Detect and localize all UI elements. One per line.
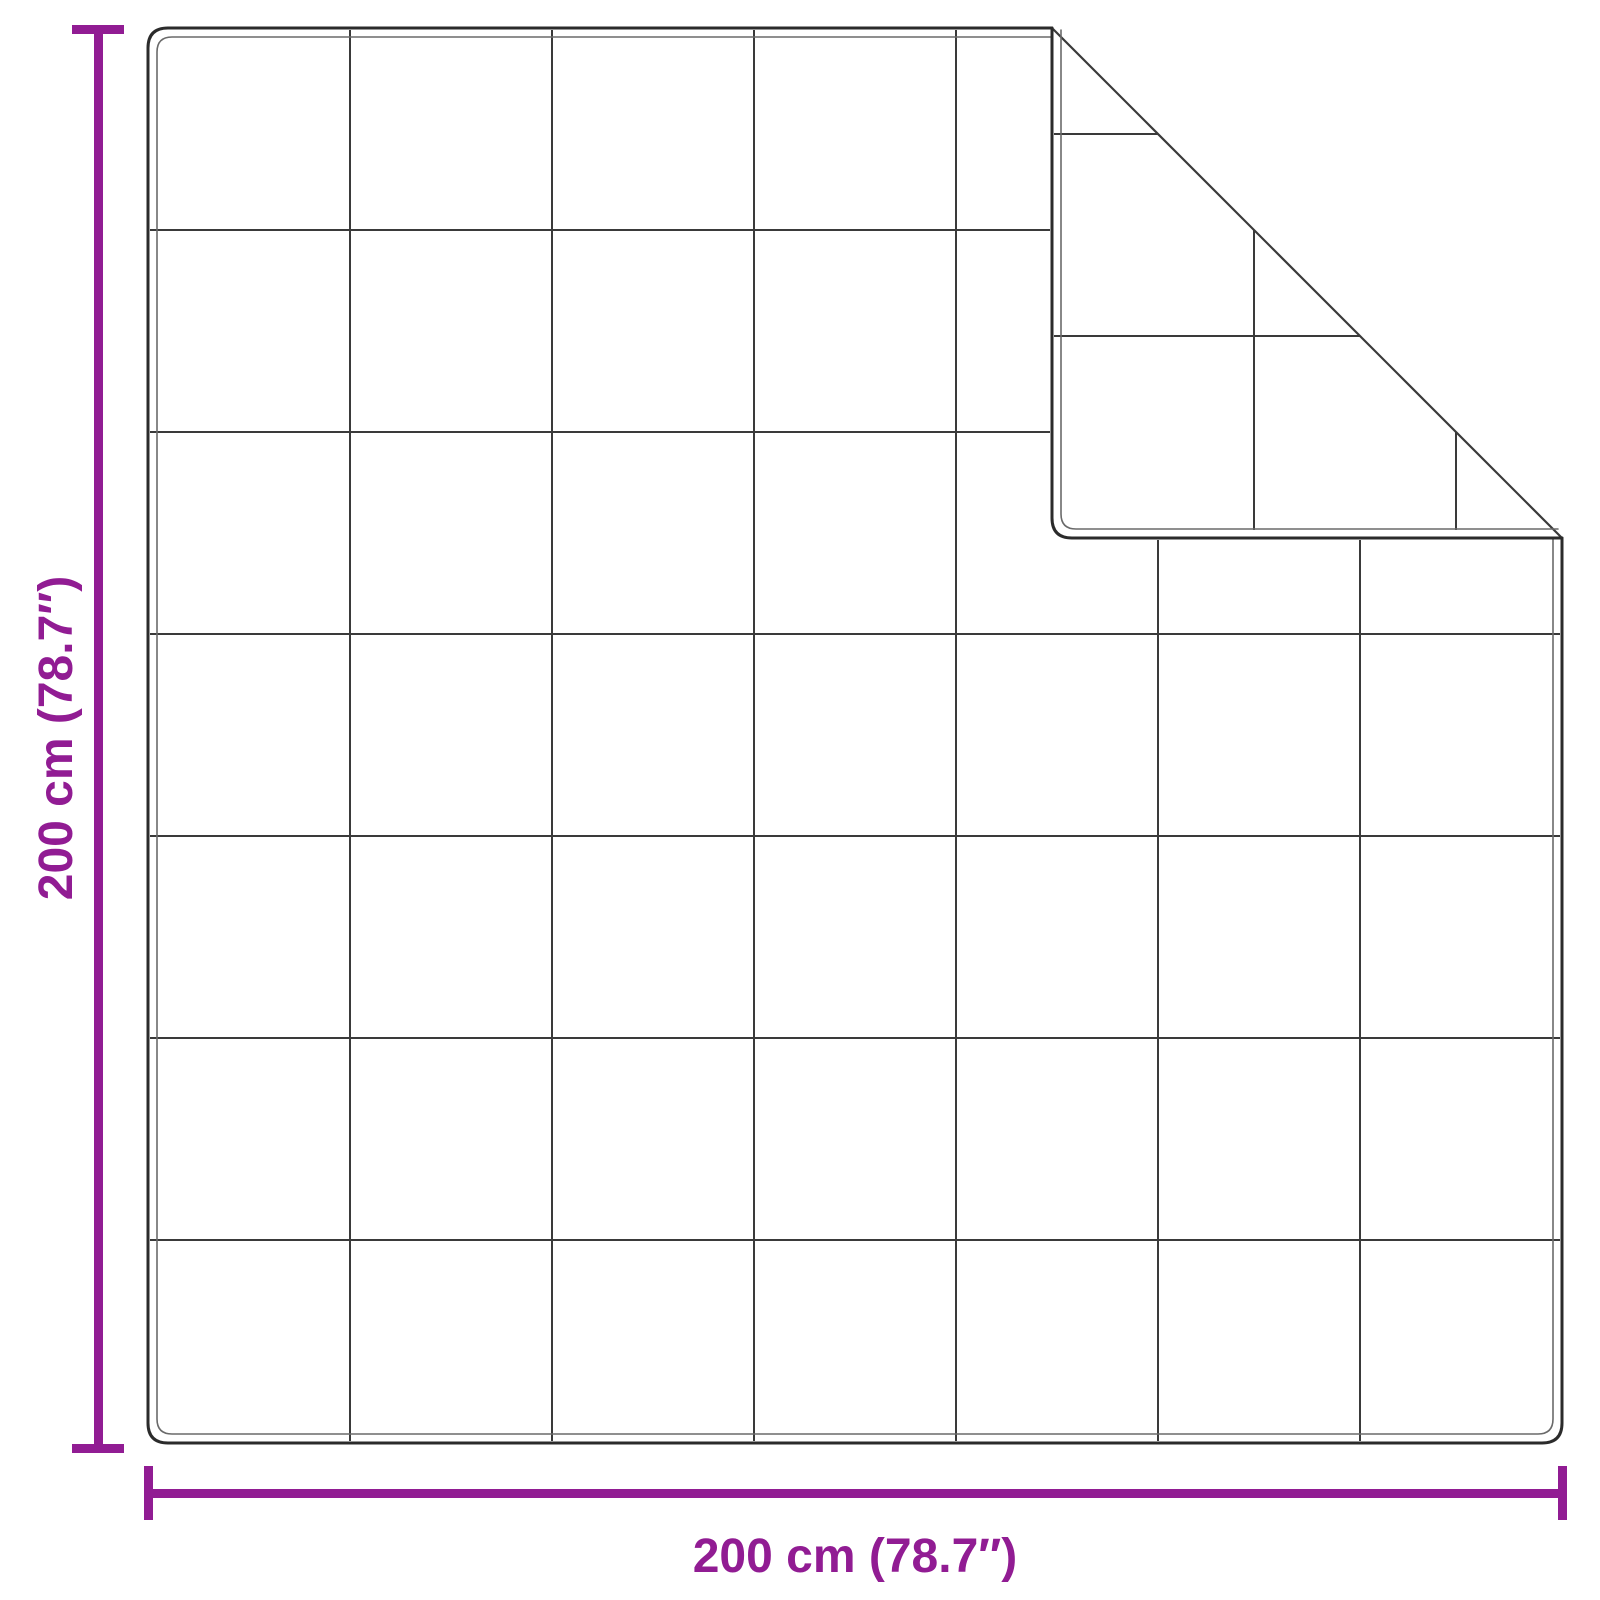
width-dimension-line [148, 1489, 1562, 1498]
width-dimension-right-cap [1558, 1466, 1567, 1520]
height-dimension-label: 200 cm (78.7″) [30, 576, 83, 901]
height-dimension-bottom-cap [72, 1444, 124, 1453]
blanket-body [148, 28, 1562, 1443]
height-dimension: 200 cm (78.7″) [30, 25, 124, 1453]
height-dimension-top-cap [72, 25, 124, 34]
width-dimension: 200 cm (78.7″) [144, 1466, 1567, 1583]
width-dimension-left-cap [144, 1466, 153, 1520]
diagram-canvas: 200 cm (78.7″) 200 cm (78.7″) [0, 0, 1600, 1600]
folded-corner-flap [1052, 28, 1562, 538]
blanket-dimension-diagram: 200 cm (78.7″) 200 cm (78.7″) [0, 0, 1600, 1600]
blanket-surface [148, 28, 1562, 1443]
width-dimension-label: 200 cm (78.7″) [693, 1530, 1018, 1583]
height-dimension-line [94, 28, 103, 1450]
